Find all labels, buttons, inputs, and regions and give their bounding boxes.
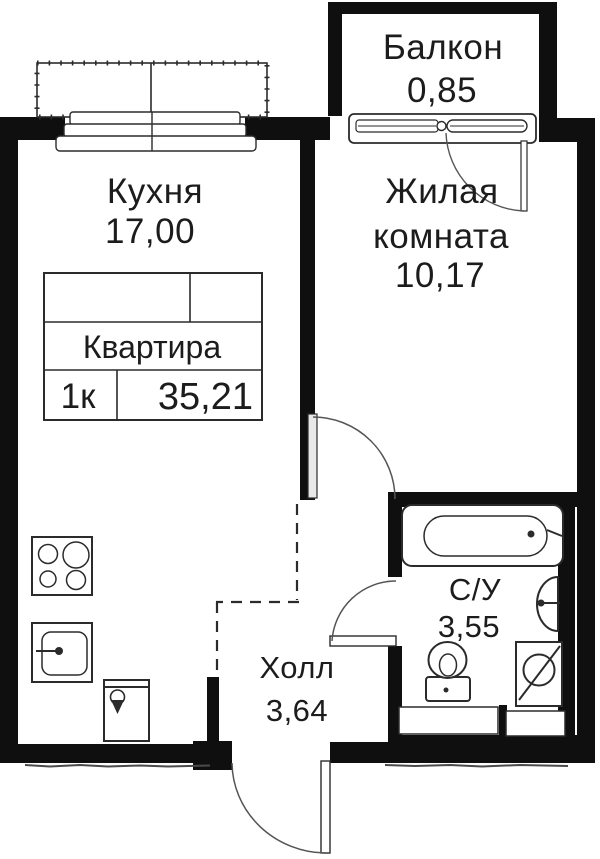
bathtub	[402, 505, 563, 566]
bathroom-door-swing-arc	[332, 581, 396, 641]
entrance-door-swing-arc	[232, 763, 325, 853]
finish-line-right	[385, 765, 568, 767]
wall-top-mid	[245, 117, 330, 140]
kitchen-fixtures	[32, 537, 149, 741]
entrance-door	[232, 761, 330, 853]
toilet-tank-button	[444, 688, 449, 693]
railing-ticks	[37, 63, 267, 117]
stove	[32, 537, 92, 595]
balcony-name: Балкон	[383, 28, 503, 67]
living-room-door	[308, 414, 395, 499]
wall-left	[0, 117, 18, 763]
bathroom-name: С/У	[449, 572, 501, 607]
apartment-stamp: Квартира 1к 35,21	[44, 273, 262, 420]
kitchen-railing	[37, 63, 267, 117]
bathroom-niches	[399, 707, 565, 736]
kitchen-sink-tap-dot	[55, 647, 63, 655]
niche-left	[399, 707, 498, 734]
balcony-door-leaf-open	[521, 141, 527, 211]
doors	[232, 414, 396, 853]
exterior-finish-lines	[25, 765, 568, 767]
floor-plan-canvas: Балкон 0,85 Кухня 17,00 Жилая комната 10…	[0, 0, 600, 859]
bathroom-area: 3,55	[438, 609, 500, 644]
hall-area: 3,64	[266, 693, 328, 728]
wall-right	[577, 118, 595, 763]
niche-right	[506, 711, 565, 736]
washbasin	[537, 577, 560, 631]
bathroom-door-leaf	[330, 636, 396, 646]
wall-balcony-top	[328, 2, 557, 14]
floor-plan: Балкон 0,85 Кухня 17,00 Жилая комната 10…	[0, 0, 600, 859]
toilet-bowl	[429, 642, 467, 678]
balcony-area: 0,85	[407, 71, 477, 110]
kitchen-sink	[32, 623, 92, 682]
stamp-total-area: 35,21	[158, 376, 253, 418]
toilet	[426, 642, 470, 701]
entrance-door-leaf	[321, 761, 330, 853]
living-name-line2: комната	[373, 217, 509, 256]
living-door-swing-arc	[313, 417, 395, 499]
washing-machine	[516, 642, 562, 706]
balcony-door-hinge	[437, 122, 446, 131]
living-name-line1: Жилая	[385, 172, 498, 211]
living-area: 10,17	[395, 256, 485, 295]
wall-balcony-right	[539, 2, 557, 119]
living-door-leaf	[308, 414, 317, 498]
kitchen-name: Кухня	[107, 172, 203, 211]
stamp-title: Квартира	[83, 329, 222, 365]
bathroom-door	[330, 581, 396, 646]
wall-top-left	[0, 117, 65, 140]
bathtub-drain	[528, 531, 535, 538]
wall-bathroom-left-upper	[388, 497, 402, 577]
water-unit	[104, 680, 149, 741]
stamp-rooms-count: 1к	[61, 377, 96, 416]
hall-name: Холл	[259, 650, 334, 685]
wall-balcony-left	[328, 2, 342, 116]
wall-bathroom-bottom	[390, 735, 595, 763]
finish-line-left	[25, 765, 210, 767]
wall-hall-stub	[207, 677, 219, 744]
kitchen-window	[56, 112, 256, 151]
kitchen-area: 17,00	[105, 212, 195, 251]
